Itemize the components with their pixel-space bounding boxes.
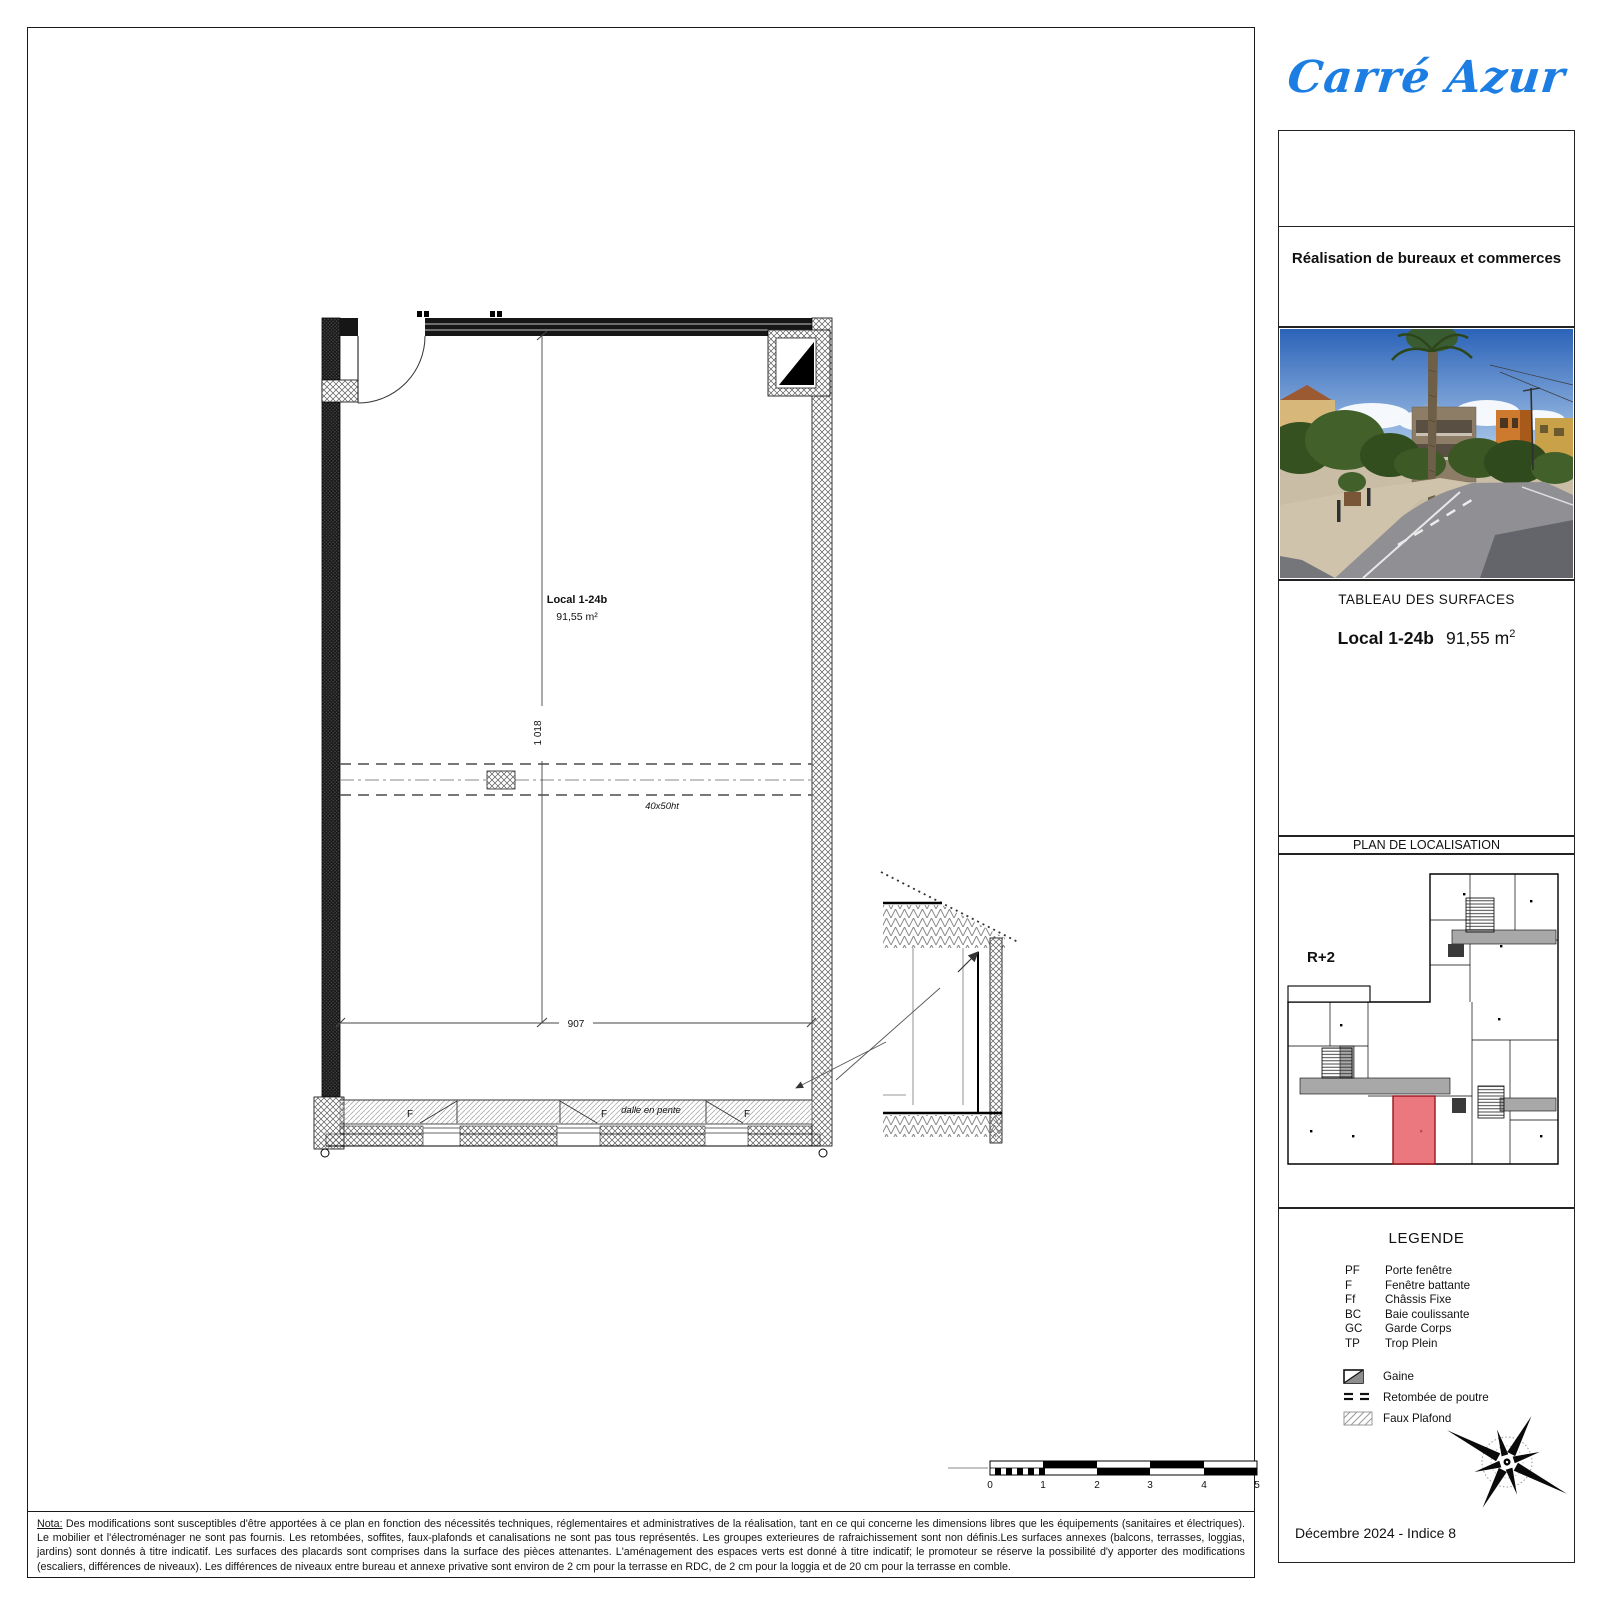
legend-symbol-row: Gaine [1343, 1366, 1574, 1387]
drawing-frame: Nota: Des modifications sont susceptible… [27, 27, 1255, 1578]
nota-block: Nota: Des modifications sont susceptible… [28, 1511, 1254, 1577]
titleblock-empty-box [1278, 130, 1575, 227]
surfaces-table-box: TABLEAU DES SURFACES Local 1-24b91,55 m2 [1278, 580, 1575, 836]
legend-row: TPTrop Plein [1279, 1337, 1574, 1352]
legend-row: GCGarde Corps [1279, 1322, 1574, 1337]
plan-sheet: Nota: Des modifications sont susceptible… [0, 0, 1600, 1600]
nota-text: Des modifications sont susceptibles d'êt… [37, 1518, 1245, 1573]
legend-box: LEGENDE PFPorte fenêtre FFenêtre battant… [1278, 1208, 1575, 1563]
faux-plafond-icon [1343, 1411, 1383, 1426]
legend-symbol-row: Retombée de poutre [1343, 1387, 1574, 1408]
gaine-icon [1343, 1369, 1383, 1384]
company-logo: Carré Azur [1275, 52, 1577, 103]
legend-row: FfChâssis Fixe [1279, 1293, 1574, 1308]
legend-row: PFPorte fenêtre [1279, 1264, 1574, 1279]
scale-tick: 5 [1254, 1480, 1260, 1491]
legend-row: FFenêtre battante [1279, 1279, 1574, 1294]
legend-symbols: Gaine Retombée de poutre Faux Plafond [1279, 1366, 1574, 1429]
localisation-plan-box [1278, 854, 1575, 1208]
surfaces-title: TABLEAU DES SURFACES [1279, 592, 1574, 607]
project-subtitle-box: Réalisation de bureaux et commerces [1278, 226, 1575, 327]
legend-title: LEGENDE [1279, 1230, 1574, 1247]
project-subtitle: Réalisation de bureaux et commerces [1279, 250, 1574, 267]
date-indice: Décembre 2024 - Indice 8 [1295, 1525, 1456, 1541]
legend-symbol-row: Faux Plafond [1343, 1408, 1574, 1429]
localisation-title-bar: PLAN DE LOCALISATION [1278, 836, 1575, 854]
nota-label: Nota: [37, 1518, 63, 1530]
surfaces-row: Local 1-24b91,55 m2 [1279, 628, 1574, 649]
unit-name: Local 1-24b [1338, 628, 1434, 648]
unit-area: 91,55 m2 [1446, 628, 1515, 648]
legend-row: BCBaie coulissante [1279, 1308, 1574, 1323]
legend-abbreviations: PFPorte fenêtre FFenêtre battante FfChâs… [1279, 1264, 1574, 1352]
retombee-de-poutre-icon [1343, 1391, 1383, 1403]
site-photo-box [1278, 327, 1575, 580]
